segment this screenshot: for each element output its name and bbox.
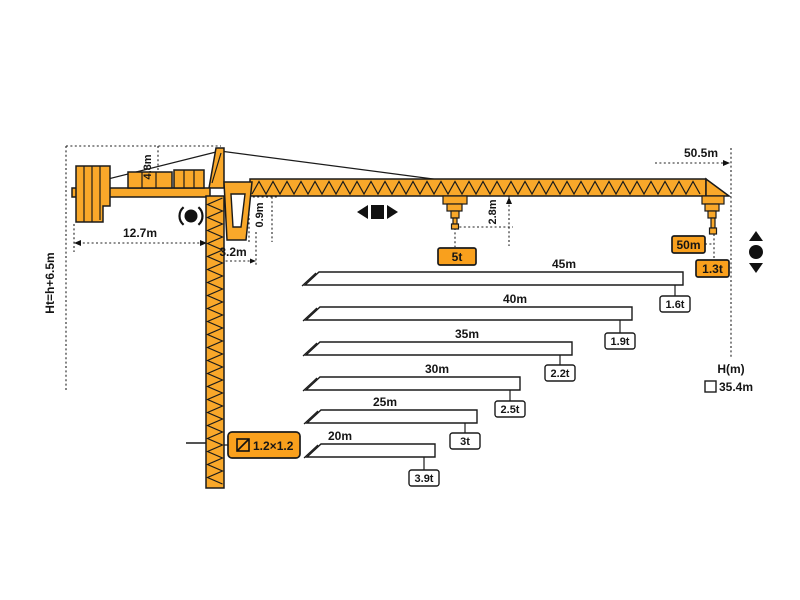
load-bar-30m: 30m 2.5t — [303, 362, 525, 417]
bar-capacity-label: 2.5t — [501, 404, 520, 416]
counterweight — [76, 166, 110, 222]
bar-length-label: 20m — [328, 429, 352, 443]
bar-length-label: 40m — [503, 292, 527, 306]
bar-length-label: 45m — [552, 257, 576, 271]
tower-head-dim: 4.8m — [142, 154, 154, 179]
tip-trolley-hook — [702, 196, 724, 234]
trolley-travel-icon — [357, 205, 398, 219]
arrow-right-icon — [723, 160, 730, 166]
arrow-up-icon — [506, 197, 512, 204]
hook-clearance-dim: 2.8m — [487, 199, 499, 224]
tail-radius-dim: 3.2m — [219, 245, 246, 259]
tip-radius-value: 50m — [676, 238, 700, 252]
load-chart: 45m 1.6t 40m 1.9t 35m 2.2t 30m — [302, 257, 690, 486]
hoist-winch-box — [174, 170, 204, 188]
tip-capacity-value: 1.3t — [702, 262, 723, 276]
mast-section-value: 1.2×1.2 — [253, 439, 294, 453]
freestanding-height-value: 35.4m — [719, 380, 753, 394]
bar-capacity-label: 2.2t — [551, 368, 570, 380]
tip-capacity-label: 1.3t — [696, 260, 729, 277]
mast-section-label: 1.2×1.2 — [224, 432, 300, 458]
bar-capacity-label: 1.6t — [666, 299, 685, 311]
slewing-icon — [180, 207, 203, 225]
max-radius-dim: 50.5m — [684, 146, 718, 160]
height-checkbox-icon — [705, 381, 716, 392]
mid-capacity-value: 5t — [452, 250, 463, 264]
hoisting-icon — [749, 231, 763, 273]
trolley-rope — [220, 151, 456, 182]
mid-capacity-label: 5t — [438, 248, 476, 265]
crane-diagram: 5t 50m 1.3t 1.2×1.2 Ht=h+6.5m 4.8m 12.7m… — [0, 0, 800, 600]
jib-tip — [706, 179, 729, 196]
load-bar-45m: 45m 1.6t — [302, 257, 690, 312]
load-bar-20m: 20m 3.9t — [304, 429, 439, 486]
bar-length-label: 25m — [373, 395, 397, 409]
tip-radius-label: 50m — [672, 236, 705, 253]
bar-length-label: 35m — [455, 327, 479, 341]
bar-length-label: 30m — [425, 362, 449, 376]
counter-jib-dim: 12.7m — [123, 226, 157, 240]
arrow-right-icon — [250, 259, 256, 264]
bar-capacity-label: 3t — [460, 436, 470, 448]
arrow-left-icon — [74, 240, 81, 246]
mid-trolley-hook — [443, 196, 467, 229]
jib-height-dim: 0.9m — [254, 202, 266, 227]
bar-capacity-label: 1.9t — [611, 336, 630, 348]
bar-capacity-label: 3.9t — [415, 473, 434, 485]
height-formula-label: Ht=h+6.5m — [43, 252, 57, 313]
height-axis-label: H(m) — [717, 362, 744, 376]
